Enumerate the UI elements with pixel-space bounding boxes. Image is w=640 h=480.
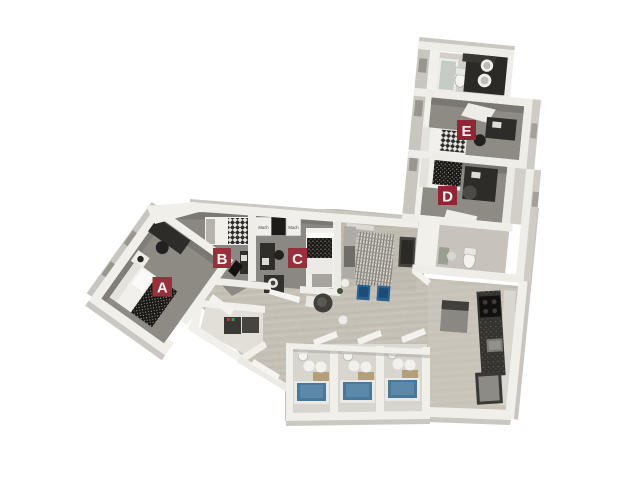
svg-text:B: B [217, 251, 228, 268]
svg-text:E: E [461, 123, 471, 140]
svg-text:A: A [157, 280, 168, 297]
svg-text:C: C [292, 251, 303, 268]
svg-text:D: D [442, 189, 453, 206]
svg-text:Mach: Mach [288, 225, 299, 230]
svg-text:Mach: Mach [258, 225, 269, 230]
